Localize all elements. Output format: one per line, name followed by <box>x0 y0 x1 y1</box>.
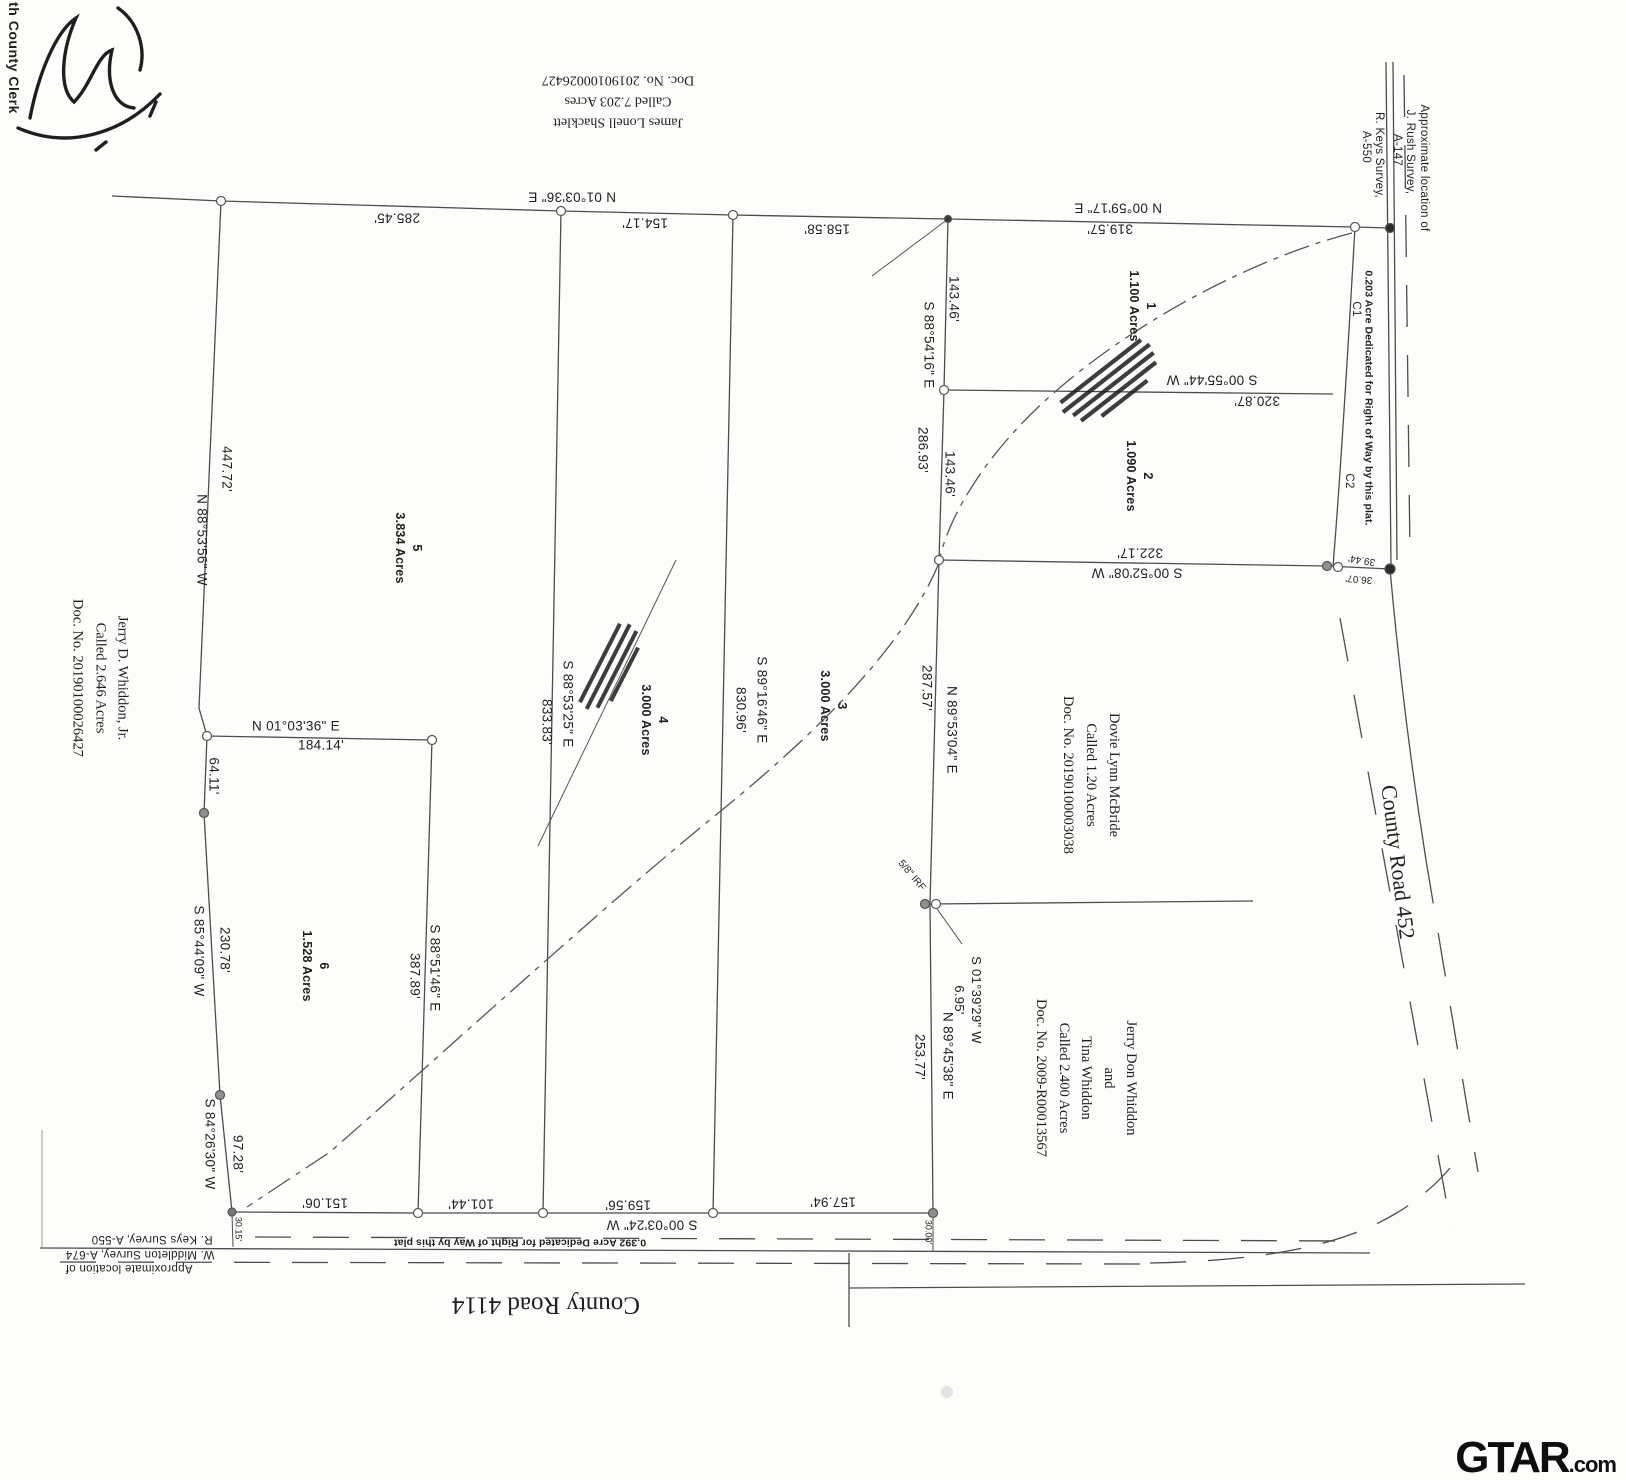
road-name-south: County Road 4114 <box>452 1289 640 1320</box>
gtar-watermark: GTAR.com <box>1455 1436 1616 1480</box>
survey-ref-ne: Approximate location of <box>1417 104 1431 231</box>
lot34-line <box>713 215 733 1213</box>
irf-leader-line <box>935 906 962 944</box>
owner-mcbride: Dovie Lynn McBride Called 1.20 Acres Doc… <box>1055 696 1125 854</box>
corner-dimension: 36.07' <box>1345 571 1373 586</box>
road4114-line <box>40 1248 1370 1253</box>
distance-label: 159.56' <box>605 1196 651 1213</box>
south-boundary-line <box>232 1212 933 1213</box>
gtar-logo-tld: .com <box>1569 1452 1616 1477</box>
tick-dimension: 30.15' <box>232 1217 243 1241</box>
plat-document: th County Clerk James Lonell Shacklett C… <box>0 0 1626 1480</box>
bearing-label: S 89°16'46" E <box>753 656 770 743</box>
lot-2-label: 21.090 Acres <box>1122 440 1156 511</box>
scan-blemish <box>941 1386 953 1398</box>
distance-label: 64.11' <box>205 757 222 794</box>
distance-label: 101.44' <box>448 1195 494 1212</box>
distance-label: 285.45' <box>374 209 420 226</box>
survey-ref-sw: Approximate location of <box>65 1261 192 1275</box>
row-dedication-east: 0.203 Acre Dedicated for Right of Way by… <box>1361 270 1374 525</box>
distance-label: 143.46' <box>945 276 962 322</box>
lot-4-label: 43.000 Acres <box>637 684 671 755</box>
survey-ref-sw: R. Keys Survey, A-550 <box>91 1232 212 1246</box>
bearing-label: S 88°53'25" E <box>559 660 576 747</box>
curve-label: C2 <box>1342 473 1356 488</box>
bearing-label: S 00°52'08" W <box>1092 564 1183 581</box>
distance-label: 97.28' <box>229 1135 246 1173</box>
distance-label: 157.94' <box>810 1193 856 1210</box>
distance-label: 230.78' <box>216 927 233 973</box>
west-boundary-line <box>199 201 232 1212</box>
survey-ref-sw: W. Middleton Survey, A-674 <box>66 1247 215 1261</box>
distance-label: 158.58' <box>804 220 850 237</box>
bearing-label: S 88°54'16" E <box>920 301 937 388</box>
tick-dimension: 30.00' <box>922 1220 933 1244</box>
bearing-label: S 00°55'44" W <box>1167 371 1258 388</box>
distance-label: 286.93' <box>914 427 931 473</box>
owner-whiddon-jr: Jerry D. Whiddon, Jr. Called 2.646 Acres… <box>66 599 133 757</box>
corner-monuments <box>200 197 1396 1218</box>
jog-dimension: S 01°39'29" W 6.95' <box>950 956 984 1044</box>
distance-label: 143.46' <box>941 451 958 497</box>
lot-1-label: 11.100 Acres <box>1125 270 1159 341</box>
bearing-label: S 88°51'46" E <box>426 924 443 1011</box>
distance-label: 151.06' <box>302 1194 348 1211</box>
gtar-logo-text: GTAR <box>1455 1433 1568 1480</box>
distance-label: 184.14' <box>298 738 344 755</box>
bearing-label: N 00°59'17" E <box>1074 199 1162 216</box>
distance-label: 320.87' <box>1234 392 1280 409</box>
owner-shacklett: James Lonell Shacklett Called 7.203 Acre… <box>542 70 694 133</box>
distance-label: 319.57' <box>1087 220 1133 237</box>
clerk-stamp-text: th County Clerk <box>4 2 22 114</box>
distance-label: 154.17' <box>622 214 668 231</box>
bearing-label: N 89°53'04" E <box>943 686 960 774</box>
lot-5-label: 53.834 Acres <box>391 512 425 583</box>
owner-whiddon: Jerry Don Whiddon and Tina Whiddon Calle… <box>1030 999 1142 1157</box>
illegible-note <box>1057 337 1166 433</box>
survey-ref-ne: R. Keys Survey, <box>1372 112 1386 198</box>
bearing-label: S 85°44'09" W <box>190 906 207 997</box>
row-dedication-south: 0.392 Acre Dedicated for Right of Way by… <box>394 1235 646 1248</box>
curve-label: C1 <box>1349 301 1363 316</box>
bearing-label: S 84°26'30" W <box>201 1099 218 1190</box>
distance-label: 322.17' <box>1117 544 1163 561</box>
bearing-label: S 00°03'24" W <box>607 1216 698 1233</box>
survey-ref-ne: J. Rush Survey, <box>1403 110 1417 195</box>
distance-label: 830.96' <box>732 687 749 733</box>
distance-label: 833.83' <box>538 699 555 745</box>
bearing-label: N 88°53'56" W <box>193 494 210 586</box>
distance-label: 387.89' <box>406 953 423 999</box>
row-curve-line <box>1333 227 1355 566</box>
distance-label: 447.72' <box>218 446 235 492</box>
bearing-label: N 01°03'36" E <box>252 719 340 736</box>
distance-label: 287.57' <box>918 665 935 711</box>
lot-3-label: 33.000 Acres <box>816 670 850 741</box>
illegible-note <box>579 620 646 717</box>
clerk-signature <box>18 8 160 150</box>
whiddon-north-line <box>930 901 1253 904</box>
bearing-label: N 01°03'36" E <box>528 188 616 205</box>
lot-6-label: 61.528 Acres <box>298 930 332 1001</box>
distance-label: 253.77' <box>911 1034 928 1080</box>
